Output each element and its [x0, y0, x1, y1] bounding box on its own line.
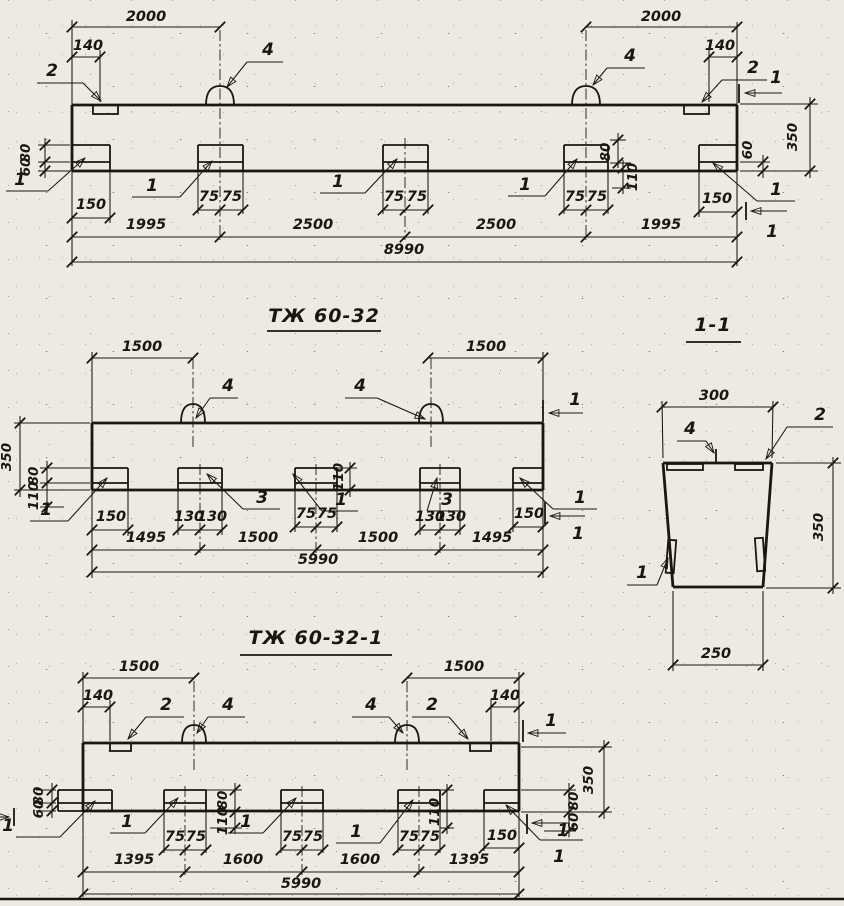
dim-half-outer: 130 [197, 509, 227, 525]
leader-anchor: 3 [256, 488, 268, 508]
leader-embed: 1 [2, 816, 14, 836]
dim-half: 75 [399, 829, 419, 845]
dim-end-right: 150 [487, 828, 517, 844]
dim-end-right: 150 [702, 191, 732, 207]
dim-overall: 5990 [281, 876, 321, 892]
leader-loop: 4 [221, 695, 234, 715]
dim-depth: 350 [785, 123, 801, 151]
dim-offset-left: 140 [73, 38, 103, 54]
dim-seg1: 1995 [126, 217, 166, 233]
embed-plate-icon [667, 464, 703, 470]
leader-embed: 1 [770, 180, 782, 200]
dim-depth: 350 [0, 443, 15, 471]
dim-right-lower: 60 [740, 141, 756, 160]
dim-span-left: 1500 [122, 339, 162, 355]
leader-embed: 1 [350, 822, 362, 842]
dim-half: 75 [199, 189, 219, 205]
dim-b2-lower: 110 [215, 807, 231, 835]
leader-plate: 2 [46, 61, 58, 81]
leader-loop: 4 [221, 376, 234, 396]
dim-offset-right: 140 [490, 688, 520, 704]
leader-loop: 4 [353, 376, 366, 396]
dim-half: 75 [186, 829, 206, 845]
dimensions: 1500 1500 140 140 80 60 350 80 60 [31, 659, 612, 899]
leader-plate: 2 [426, 695, 438, 715]
dim-b4: 110 [427, 798, 443, 826]
leader-plate: 2 [747, 58, 759, 78]
dim-half: 75 [222, 189, 242, 205]
dim-depth: 350 [811, 513, 827, 541]
dim-seg2: 2500 [293, 217, 333, 233]
dim-seg4: 1395 [449, 852, 489, 868]
dim-half: 75 [303, 829, 323, 845]
dim-seg2: 1500 [238, 530, 278, 546]
view-title: 1-1 [694, 314, 731, 336]
dim-end-left: 150 [76, 197, 106, 213]
dim-span-right: 1500 [444, 659, 484, 675]
dim-span-right: 1500 [466, 339, 506, 355]
dim-overall: 5990 [298, 552, 338, 568]
leader-loop: 4 [623, 46, 636, 66]
leader-embed: 1 [40, 500, 52, 520]
leader-embed: 1 [121, 812, 133, 832]
section-cut-label: 1 [770, 68, 782, 88]
section-cut-marks: 1 1 [543, 390, 585, 544]
leader-loop: 4 [683, 419, 696, 439]
dim-b2-upper: 80 [215, 791, 231, 810]
dim-b4-lower: 110 [625, 163, 641, 191]
dim-b4-upper: 80 [598, 143, 614, 162]
dim-half: 75 [407, 189, 427, 205]
leader-anchor: 3 [441, 490, 453, 510]
leader-loop: 4 [261, 40, 274, 60]
dim-right-upper: 80 [566, 792, 582, 811]
dim-seg3: 2500 [476, 217, 516, 233]
section-cut-label: 1 [553, 847, 565, 867]
dim-seg1: 1395 [114, 852, 154, 868]
dim-half: 75 [565, 189, 585, 205]
leader-embed: 1 [146, 176, 158, 196]
dim-seg2: 1600 [223, 852, 263, 868]
dim-half: 75 [384, 189, 404, 205]
dimensions: 2000 2000 140 140 80 60 350 60 80 110 [18, 9, 818, 267]
leader-embed: 1 [557, 821, 569, 841]
dim-seg3: 1600 [340, 852, 380, 868]
dim-half-center: 75 [296, 506, 316, 522]
dim-seg1: 1495 [126, 530, 166, 546]
dimensions: 1500 1500 350 80 110 110 150 130 130 75 … [0, 339, 548, 577]
view-title: ТЖ 60-32-1 [249, 627, 384, 649]
dim-seg3: 1500 [358, 530, 398, 546]
dim-overall: 8990 [384, 242, 424, 258]
dim-half: 75 [165, 829, 185, 845]
leader-plate: 2 [160, 695, 172, 715]
leader-embed: 1 [240, 812, 252, 832]
section-cut-label: 1 [572, 524, 584, 544]
dim-span-left: 1500 [119, 659, 159, 675]
dim-span-right: 2000 [641, 9, 681, 25]
leader-embed: 1 [332, 172, 344, 192]
dim-depth: 350 [581, 766, 597, 794]
dim-width-top: 300 [699, 388, 729, 404]
dim-left-lower: 60 [31, 800, 47, 819]
view-tzh-60-32-1: ТЖ 60-32-1 [0, 627, 612, 899]
leaders: 4 4 1 3 1 3 1 [30, 376, 597, 521]
leader-embed: 1 [574, 488, 586, 508]
dim-span-left: 2000 [126, 9, 166, 25]
dim-half: 75 [282, 829, 302, 845]
dim-seg4: 1995 [641, 217, 681, 233]
dim-end-right: 150 [514, 506, 544, 522]
dim-seg4: 1495 [472, 530, 512, 546]
dim-offset-left: 140 [83, 688, 113, 704]
leader-loop: 4 [364, 695, 377, 715]
section-cut-label: 1 [766, 222, 778, 242]
leaders: 2 4 4 2 1 1 1 1 1 [6, 40, 795, 201]
section-cut-label: 1 [569, 390, 581, 410]
dim-width-bottom: 250 [701, 646, 731, 662]
dim-half: 75 [587, 189, 607, 205]
leader-embed: 1 [519, 175, 531, 195]
dim-end-left: 150 [96, 509, 126, 525]
view-section-1-1: 1-1 4 2 1 300 350 250 [627, 314, 841, 671]
leader-embed: 1 [14, 170, 26, 190]
leaders: 2 4 4 2 1 1 1 1 1 [2, 695, 583, 843]
view-beam-8990: 2000 2000 140 140 80 60 350 60 80 110 [6, 9, 818, 267]
dim-half: 75 [420, 829, 440, 845]
dim-offset-right: 140 [705, 38, 735, 54]
embed-plate-icon [735, 464, 763, 470]
leader-embed: 1 [335, 490, 347, 510]
dim-b3: 110 [331, 463, 347, 491]
view-tzh-60-32: ТЖ 60-32 1500 [0, 305, 597, 578]
section-cut-label: 1 [545, 711, 557, 731]
drawing-canvas: 2000 2000 140 140 80 60 350 60 80 110 [0, 0, 844, 902]
leader-embed: 1 [636, 563, 648, 583]
view-title: ТЖ 60-32 [268, 305, 380, 327]
leaders: 4 2 1 [627, 405, 833, 585]
leader-plate: 2 [814, 405, 826, 425]
